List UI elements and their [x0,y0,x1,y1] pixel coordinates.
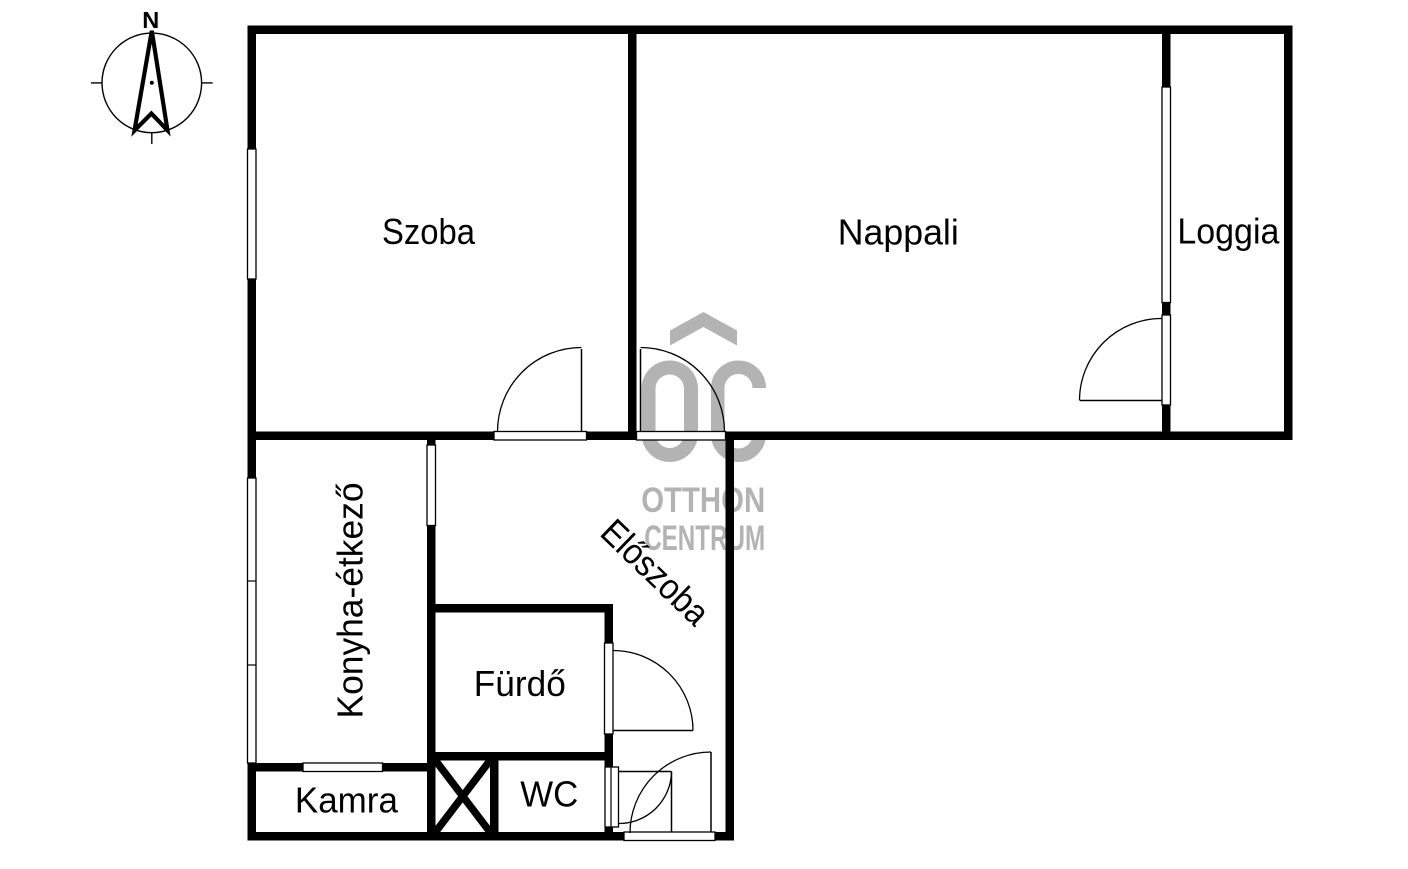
svg-text:Konyha-étkező: Konyha-étkező [330,483,371,719]
svg-text:Loggia: Loggia [1177,211,1280,252]
svg-text:N: N [142,7,159,33]
svg-text:Nappali: Nappali [838,211,959,252]
svg-text:OTTHON: OTTHON [641,481,765,520]
svg-text:Szoba: Szoba [382,211,476,252]
svg-text:Kamra: Kamra [295,780,399,821]
svg-text:WC: WC [520,774,578,815]
svg-text:Fürdő: Fürdő [474,663,566,704]
